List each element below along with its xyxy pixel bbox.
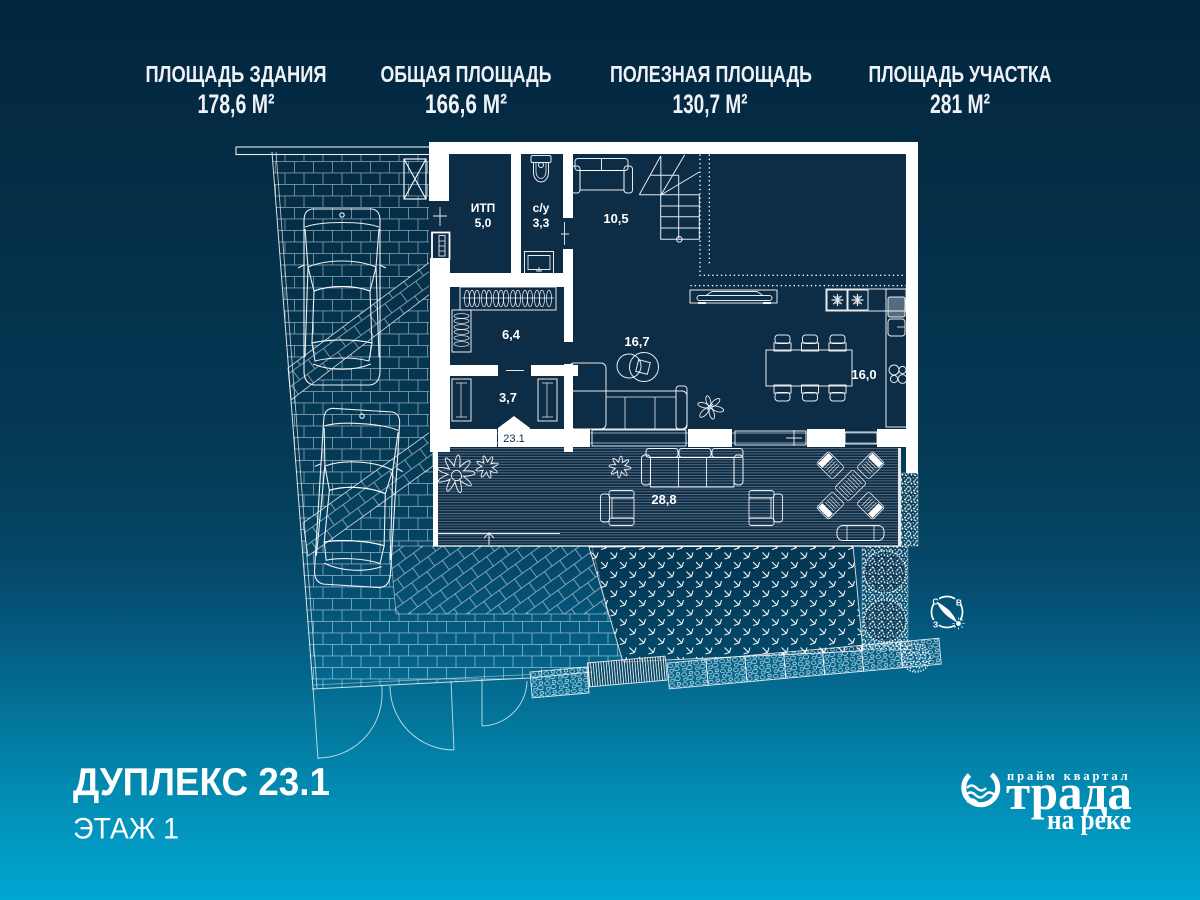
svg-text:ИТП: ИТП (471, 201, 496, 215)
svg-text:5,0: 5,0 (475, 216, 492, 230)
svg-text:ЭТАЖ 1: ЭТАЖ 1 (73, 813, 179, 846)
svg-text:10,5: 10,5 (603, 211, 628, 226)
svg-text:130,7 М²: 130,7 М² (673, 89, 748, 119)
svg-text:на реке: на реке (1047, 805, 1131, 836)
svg-text:ОБЩАЯ ПЛОЩАДЬ: ОБЩАЯ ПЛОЩАДЬ (381, 61, 552, 87)
svg-text:23.1: 23.1 (503, 433, 524, 445)
svg-text:178,6 М²: 178,6 М² (198, 89, 275, 119)
svg-text:3,7: 3,7 (499, 390, 517, 405)
svg-text:28,8: 28,8 (651, 492, 676, 507)
svg-text:С: С (932, 597, 938, 607)
svg-text:З: З (933, 620, 938, 630)
svg-text:ПОЛЕЗНАЯ ПЛОЩАДЬ: ПОЛЕЗНАЯ ПЛОЩАДЬ (610, 61, 812, 87)
svg-text:с/у: с/у (533, 201, 550, 215)
svg-text:16,0: 16,0 (851, 367, 876, 382)
svg-text:16,7: 16,7 (624, 334, 649, 349)
svg-text:6,4: 6,4 (502, 327, 521, 342)
svg-text:В: В (956, 598, 962, 608)
svg-text:281 М²: 281 М² (930, 89, 990, 119)
svg-text:ДУПЛЕКС 23.1: ДУПЛЕКС 23.1 (73, 761, 330, 804)
svg-text:3,3: 3,3 (533, 216, 550, 230)
svg-text:166,6 М²: 166,6 М² (425, 89, 507, 119)
svg-text:ПЛОЩАДЬ УЧАСТКА: ПЛОЩАДЬ УЧАСТКА (869, 61, 1052, 87)
svg-text:ПЛОЩАДЬ ЗДАНИЯ: ПЛОЩАДЬ ЗДАНИЯ (146, 61, 327, 87)
